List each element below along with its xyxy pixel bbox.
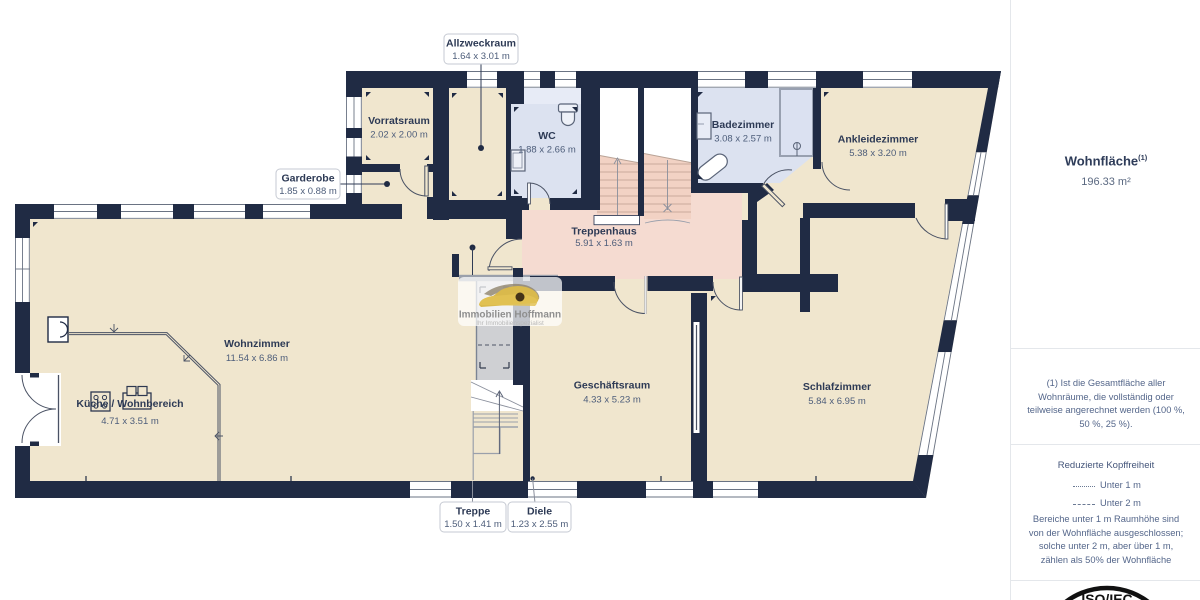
svg-text:WC: WC — [538, 130, 556, 142]
svg-text:Küche / Wohnbereich: Küche / Wohnbereich — [76, 398, 183, 410]
svg-text:1.64 x 3.01 m: 1.64 x 3.01 m — [452, 51, 510, 62]
svg-text:Ihr Immobilienspezialist: Ihr Immobilienspezialist — [476, 320, 544, 327]
svg-text:ISO/IEC: ISO/IEC — [1081, 591, 1132, 600]
svg-text:5.38 x 3.20 m: 5.38 x 3.20 m — [849, 148, 907, 159]
svg-text:1.50 x 1.41 m: 1.50 x 1.41 m — [444, 519, 502, 530]
svg-text:Diele: Diele — [527, 506, 552, 518]
svg-text:11.54 x 6.86 m: 11.54 x 6.86 m — [226, 353, 288, 364]
svg-text:Garderobe: Garderobe — [281, 173, 334, 185]
svg-text:3.08 x 2.57 m: 3.08 x 2.57 m — [714, 134, 772, 145]
svg-text:Schlafzimmer: Schlafzimmer — [803, 381, 871, 393]
svg-text:Wohnzimmer: Wohnzimmer — [224, 338, 290, 350]
svg-text:5.91 x 1.63 m: 5.91 x 1.63 m — [575, 238, 633, 249]
svg-text:Allzweckraum: Allzweckraum — [446, 38, 516, 50]
svg-text:Treppenhaus: Treppenhaus — [571, 226, 637, 238]
svg-text:4.71 x 3.51 m: 4.71 x 3.51 m — [101, 416, 159, 427]
svg-text:2.02 x 2.00 m: 2.02 x 2.00 m — [370, 130, 428, 141]
svg-text:Immobilien Hoffmann: Immobilien Hoffmann — [459, 310, 561, 321]
svg-text:1.23 x 2.55 m: 1.23 x 2.55 m — [511, 519, 569, 530]
svg-text:1.88 x 2.66 m: 1.88 x 2.66 m — [518, 145, 576, 156]
svg-text:Badezimmer: Badezimmer — [712, 119, 774, 131]
svg-text:5.84 x 6.95 m: 5.84 x 6.95 m — [808, 396, 866, 407]
svg-text:4.33 x 5.23 m: 4.33 x 5.23 m — [583, 395, 641, 406]
svg-text:Vorratsraum: Vorratsraum — [368, 115, 430, 127]
svg-text:Treppe: Treppe — [456, 506, 491, 518]
svg-text:1.85 x 0.88 m: 1.85 x 0.88 m — [279, 186, 337, 197]
svg-text:Geschäftsraum: Geschäftsraum — [574, 380, 650, 392]
svg-text:Ankleidezimmer: Ankleidezimmer — [838, 134, 919, 146]
